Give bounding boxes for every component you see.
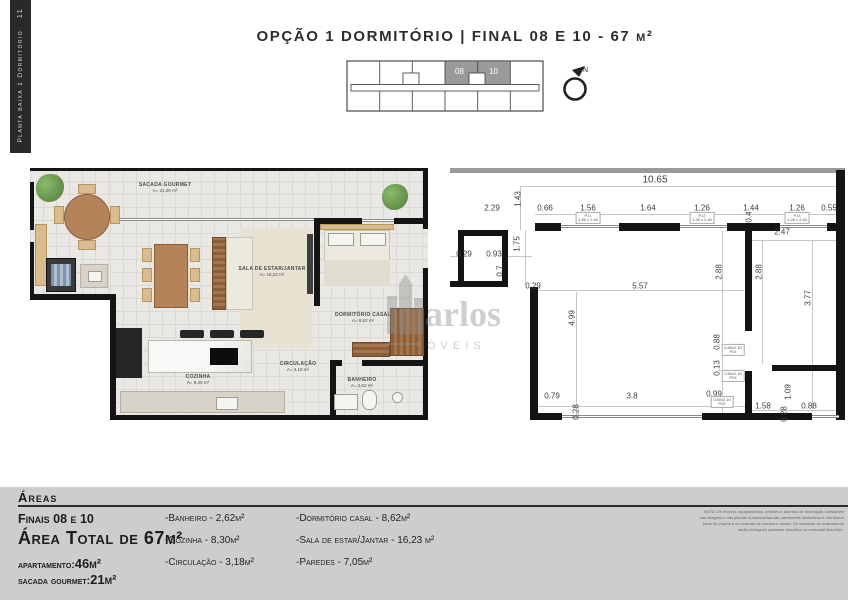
wall-segment [30, 242, 34, 298]
opening-tag: PJ31.26 x 2.40 [785, 212, 810, 224]
area-item: -Dormitório casal - 8,62m² [296, 513, 476, 524]
dimension-label: 2.47 [774, 228, 790, 237]
wall-segment [827, 223, 845, 231]
window-glass [362, 219, 394, 222]
sidebar-tab: 11 Planta baixa 1 Dormitório [10, 0, 31, 153]
dimension-label: 4.99 [568, 310, 577, 326]
dimension-label: 3.8 [626, 392, 637, 401]
north-arrow-icon: N [558, 62, 598, 111]
chair [190, 288, 200, 302]
window-glass [562, 415, 702, 418]
wall-segment [30, 294, 114, 300]
stool [180, 330, 204, 338]
disclaimer-note: NOTA: Os móveis, equipamentos, enfeites … [698, 509, 844, 533]
dimension-label: 1.09 [784, 384, 793, 400]
kitchen-cabinet [116, 328, 142, 378]
wall-segment [362, 360, 425, 366]
shaft [458, 230, 508, 287]
apartamento-area: apartamento:46m² [18, 556, 101, 571]
area-item: -Circulação - 3,18m² [165, 557, 295, 568]
dimension-label: 1.75 [513, 236, 522, 252]
building-keyplan: 08 10 [345, 58, 545, 119]
areas-column-2: -Dormitório casal - 8,62m²-Sala de estar… [296, 513, 476, 579]
dimension-label: 0.79 [544, 392, 560, 401]
wall-segment [535, 223, 561, 231]
wall-segment [314, 224, 320, 306]
sacada-area: sacada gourmet:21m² [18, 572, 116, 587]
room-label: SACADA GOURMETA= 21,00 m² [139, 182, 191, 194]
wall-segment [772, 365, 836, 371]
bath-stool [392, 392, 403, 403]
dimension-label: 10.65 [642, 175, 667, 186]
dimension-line [752, 240, 840, 241]
areas-column-1: -Banheiro - 2,62m²-Cozinha - 8,30m²-Circ… [165, 513, 295, 579]
corridor [351, 85, 539, 92]
window-glass [114, 218, 314, 221]
chair [78, 184, 96, 194]
page-title: OPÇÃO 1 DORMITÓRIO | FINAL 08 E 10 - 67 … [62, 28, 848, 45]
chair [78, 240, 96, 250]
room-area: A= 8,30 m² [186, 380, 211, 386]
sidebar-label: Planta baixa 1 Dormitório [17, 30, 24, 142]
dimension-plan: 10.652.291.430.661.561.641.261.441.260.5… [450, 168, 845, 430]
room-area: A= 21,00 m² [139, 188, 191, 194]
dimension-line [525, 230, 526, 285]
area-item: -Paredes - 7,05m² [296, 557, 476, 568]
dimension-label: 0.4 [745, 211, 754, 222]
area-item: -Banheiro - 2,62m² [165, 513, 295, 524]
kitchen-counter [120, 391, 285, 413]
dimension-label: 2.88 [755, 264, 764, 280]
wall-segment [530, 287, 538, 420]
island-tv [210, 348, 238, 365]
room-label: BANHEIROA= 2,62 m² [347, 377, 376, 389]
chair [190, 268, 200, 282]
dimension-label: 0.28 [780, 406, 789, 422]
dimension-label: 0.93 [486, 250, 502, 259]
dimension-label: 0.88 [801, 402, 817, 411]
window-glass [561, 225, 619, 228]
areas-footer: Áreas Finais 08 e 10 Área Total de 67m² … [0, 487, 848, 600]
grill [46, 258, 76, 292]
areas-title: Áreas [18, 490, 57, 505]
wall-segment [110, 415, 428, 420]
room-area: A= 2,62 m² [347, 383, 376, 389]
pillow [328, 233, 354, 246]
dimension-label: 0.29 [525, 282, 541, 291]
window-glass [680, 225, 727, 228]
wardrobe [390, 308, 424, 356]
dimension-line [812, 240, 813, 412]
opening-tag: 0.80x2.10P01 [722, 344, 745, 356]
stool [210, 330, 234, 338]
page: 11 Planta baixa 1 Dormitório OPÇÃO 1 DOR… [0, 0, 848, 600]
unit-08-label: 08 [455, 67, 464, 76]
dimension-label: 0.88 [713, 334, 722, 350]
chair [54, 206, 64, 224]
pillow [360, 233, 386, 246]
dimension-label: 0.28 [572, 404, 581, 420]
shoe-rack [352, 342, 390, 357]
bathroom-vanity [334, 394, 358, 410]
dimension-label: 2.88 [715, 264, 724, 280]
dimension-label: 3.77 [804, 290, 813, 306]
chair [142, 268, 152, 282]
opening-tag: PJ11.56 x 2.40 [576, 212, 601, 224]
area-total-label: Área Total de 67m² [18, 528, 183, 549]
opening-tag: 0.80x2.10P02 [711, 396, 734, 408]
room-label: COZINHAA= 8,30 m² [186, 374, 211, 386]
dining-table [154, 244, 188, 308]
dimension-label: 0.7 [496, 265, 505, 276]
wall-segment [619, 223, 680, 231]
chair [110, 206, 120, 224]
room-label: DORMITÓRIO CASALA= 8,62 m² [335, 312, 391, 324]
tv-panel [307, 234, 313, 294]
finais-label: Finais 08 e 10 [18, 512, 94, 526]
wall-segment [394, 218, 428, 224]
dimension-label: 1.64 [640, 204, 656, 213]
wall-segment [30, 168, 428, 171]
chair [190, 248, 200, 262]
room-label: CIRCULAÇÃOA= 3,18 m² [280, 361, 317, 373]
wall-segment [702, 413, 752, 420]
dimension-label: 0.66 [537, 204, 553, 213]
kitchen-sink [216, 397, 238, 410]
chair [142, 248, 152, 262]
dimension-label: 0.29 [456, 250, 472, 259]
dimension-label: 5.57 [632, 282, 648, 291]
wall-segment [836, 170, 845, 420]
rendered-floorplan: SACADA GOURMETA= 21,00 m²SALA DE ESTAR/J… [30, 168, 428, 432]
dimension-line [762, 240, 763, 364]
wall-segment [727, 223, 780, 231]
round-table [64, 194, 110, 240]
chair [142, 288, 152, 302]
balcony-counter [80, 264, 108, 288]
toilet [362, 390, 377, 410]
area-item: -Sala de estar/Jantar - 16,23 m² [296, 535, 476, 546]
room-area: A= 3,18 m² [280, 367, 317, 373]
dimension-label: 0.55 [821, 204, 837, 213]
wall-segment [839, 413, 845, 420]
stool [240, 330, 264, 338]
dimension-line [520, 186, 844, 187]
dimension-label: 2.29 [484, 204, 500, 213]
wall-segment [745, 231, 752, 331]
page-number: 11 [17, 8, 24, 18]
dimension-label: 0,13 [713, 360, 722, 376]
divider [18, 505, 848, 507]
unit-10-label: 10 [489, 67, 498, 76]
dimension-label: 1.58 [755, 402, 771, 411]
wood-rack [212, 237, 226, 310]
opening-tag: 0.80x2.10P04 [722, 370, 745, 382]
opening-tag: PJ21.26 x 2.40 [690, 212, 715, 224]
slab-edge [450, 168, 845, 173]
room-area: A= 8,62 m² [335, 318, 391, 324]
dimension-label: 1.43 [514, 191, 523, 207]
wall-segment [530, 413, 562, 420]
window-glass [812, 415, 839, 418]
area-item: -Cozinha - 8,30m² [165, 535, 295, 546]
blanket [324, 260, 390, 286]
wall-segment [30, 182, 34, 230]
room-area: A= 16,23 m² [238, 272, 305, 278]
room-label: SALA DE ESTAR/JANTARA= 16,23 m² [238, 266, 305, 278]
